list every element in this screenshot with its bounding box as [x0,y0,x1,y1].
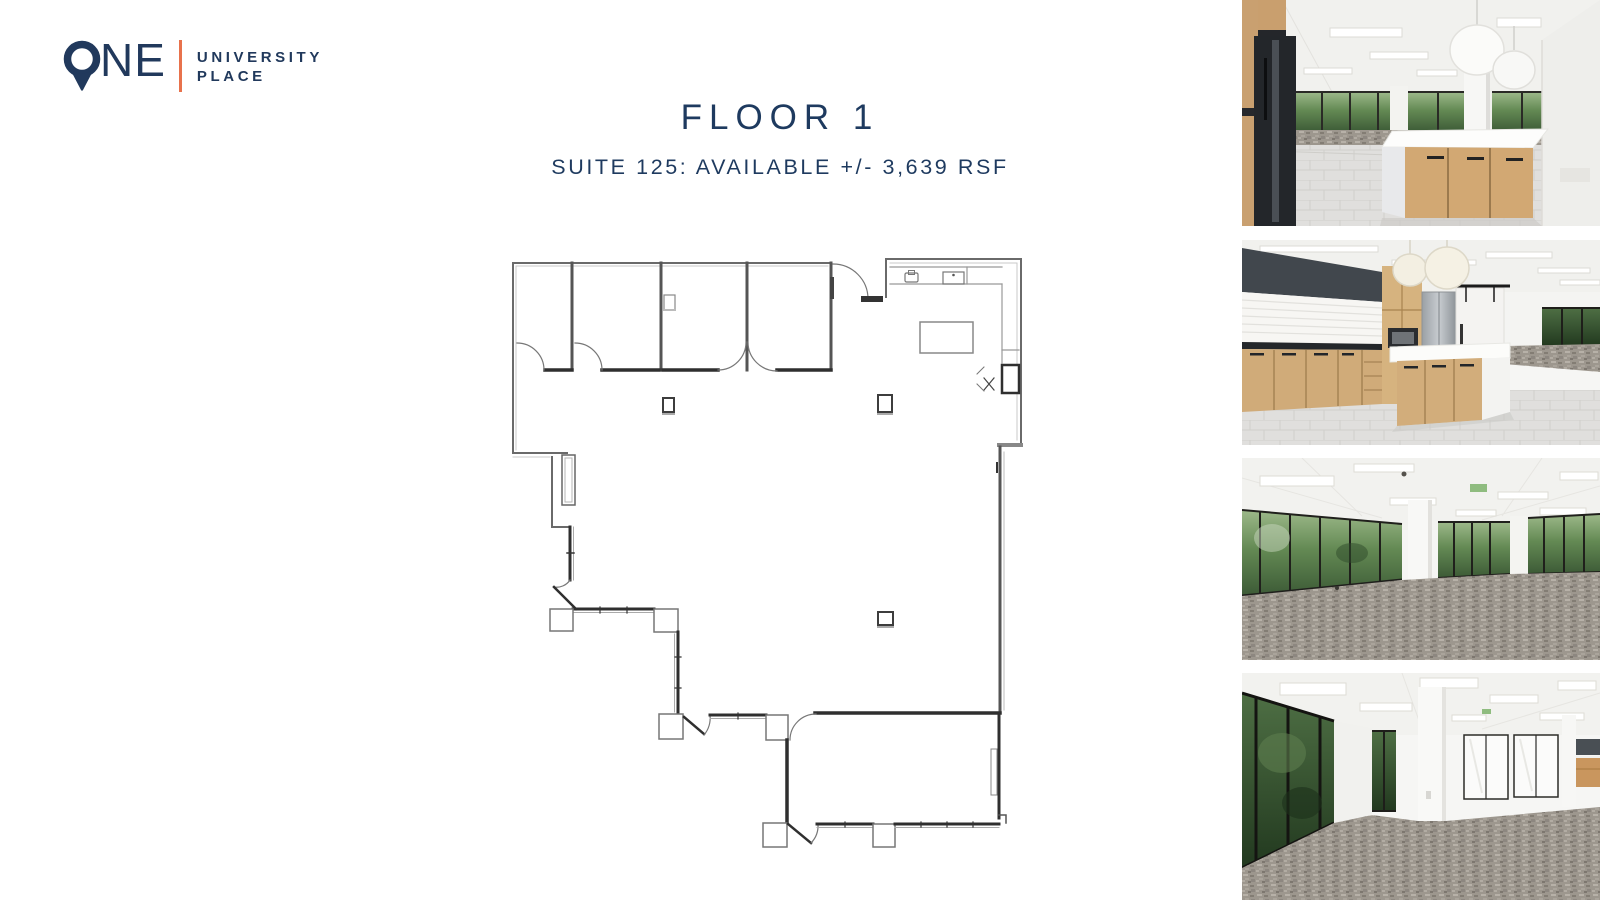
suite-availability-subtitle: SUITE 125: AVAILABLE +/- 3,639 RSF [350,155,1210,180]
kitchen-island-photo-art [1242,0,1600,226]
brand-logo: NE UNIVERSITY PLACE [62,38,323,94]
kitchen-island-photo [1242,0,1600,226]
open-office-column-photo [1242,673,1600,900]
kitchen-counter-photo-art [1242,240,1600,445]
floor-plan-drawing [500,250,1030,850]
logo-wordmark: NE [62,38,166,94]
page-title: FLOOR 1 [350,98,1210,138]
logo-letters: NE [100,38,166,82]
logo-line1: UNIVERSITY [197,48,323,68]
logo-divider [179,40,182,92]
floor-plan-suite-125 [500,250,1030,850]
open-office-column-photo-art [1242,673,1600,900]
kitchen-counter-photo [1242,240,1600,445]
map-pin-icon [62,38,102,94]
logo-line2: PLACE [197,67,323,87]
page-header: FLOOR 1 SUITE 125: AVAILABLE +/- 3,639 R… [350,98,1210,180]
open-office-windows-photo [1242,458,1600,660]
open-office-windows-photo-art [1242,458,1600,660]
logo-name: UNIVERSITY PLACE [197,46,323,87]
